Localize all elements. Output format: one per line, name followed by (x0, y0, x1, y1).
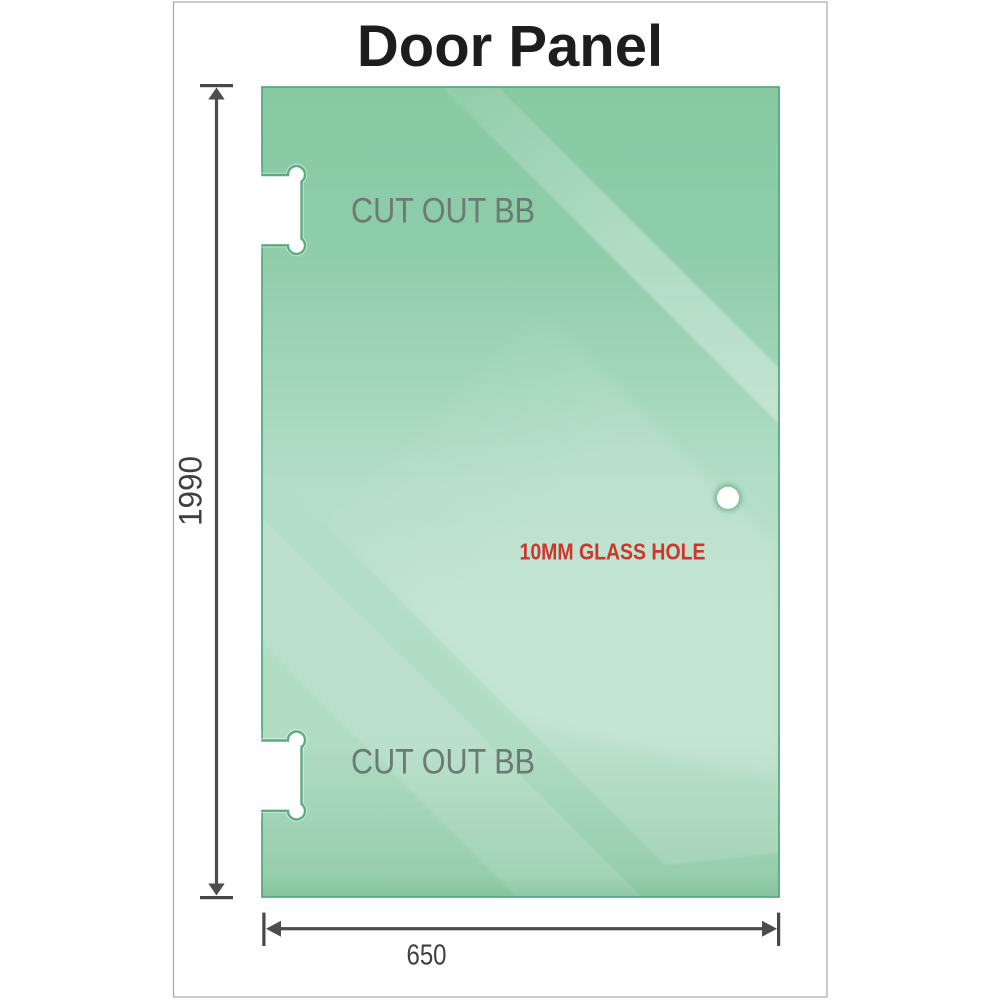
svg-text:Door Panel: Door Panel (357, 14, 663, 79)
svg-text:CUT OUT BB: CUT OUT BB (351, 192, 535, 231)
svg-text:CUT OUT BB: CUT OUT BB (351, 743, 535, 782)
svg-text:1990: 1990 (173, 456, 209, 526)
svg-text:650: 650 (407, 940, 447, 972)
svg-text:10MM GLASS HOLE: 10MM GLASS HOLE (520, 539, 706, 565)
